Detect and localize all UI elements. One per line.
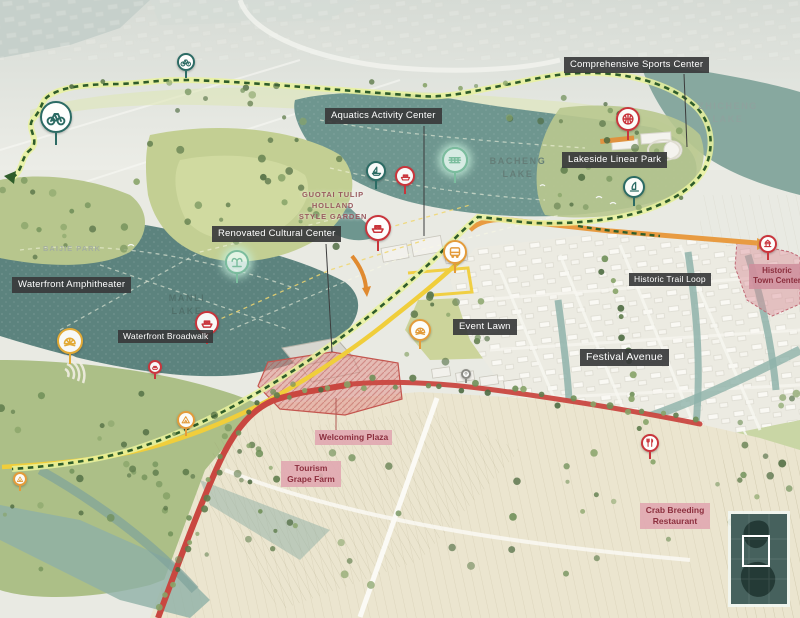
label-tourism-grape-farm: Tourism Grape Farm [281,461,341,487]
ferry-icon [395,166,415,186]
label-baijie-park: BAIJIE PARK [40,244,104,255]
label-renovated-cultural-center: Renovated Cultural Center [212,226,341,242]
location-pin-icon [461,369,471,379]
label-event-lawn: Event Lawn [453,319,517,335]
restaurant-icon [641,434,659,452]
campground-icon [177,411,195,429]
sailboat-icon [366,161,386,181]
label-bacheng-lake: BACHENG LAKE [485,155,551,181]
label-comprehensive-sports-center: Comprehensive Sports Center [564,57,709,73]
label-guotai-tulip-garden: GUOTAI TULIP HOLLAND STYLE GARDEN [297,190,369,223]
ferry-icon [365,215,391,241]
label-waterfront-amphitheater: Waterfront Amphitheater [12,277,131,293]
label-lakeside-linear-park: Lakeside Linear Park [562,152,667,168]
label-aquatics-activity-center: Aquatics Activity Center [325,108,442,124]
label-festival-avenue: Festival Avenue [580,349,669,366]
label-historic-trail-loop: Historic Trail Loop [629,273,711,286]
label-crab-breeding-restaurant: Crab Breeding Restaurant [640,503,710,529]
key-map-inset [731,514,787,604]
amphitheater-icon [409,319,431,341]
ferry-icon [148,360,162,374]
bicycle-icon [177,53,195,71]
master-plan-canvas: Comprehensive Sports Center Aquatics Act… [0,0,800,618]
windsurf-icon [623,176,645,198]
label-waterfront-broadwalk: Waterfront Broadwalk [118,330,213,343]
bus-icon [443,240,467,264]
label-historic-town-center: Historic Town Center [749,264,800,289]
label-zhicheng-lake: ZHICHENG LAKE [695,100,761,126]
fountain-icon [225,250,249,274]
label-welcoming-plaza: Welcoming Plaza [315,430,392,445]
amphitheater-icon [57,328,83,354]
bicycle-icon [40,101,72,133]
campground-icon [13,472,27,486]
pagoda-icon [759,235,777,253]
boat-tour-icon [442,147,468,173]
basketball-icon [616,107,640,131]
